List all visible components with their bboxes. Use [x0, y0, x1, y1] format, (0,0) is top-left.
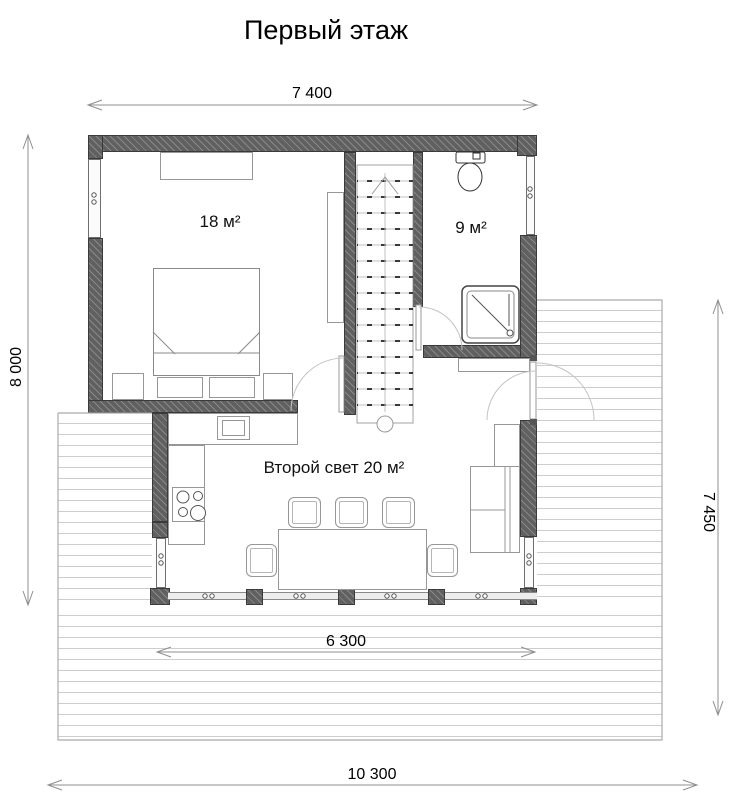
post-bottom-3 — [338, 589, 355, 605]
wall-left — [88, 238, 103, 413]
dimension-right-label: 7 450 — [699, 462, 717, 562]
sink-bowl — [222, 420, 245, 436]
shower-outline — [462, 286, 519, 343]
wall-left-lower — [152, 413, 168, 522]
bathroom-cabinet — [458, 358, 530, 372]
toilet — [456, 152, 485, 191]
shower-diagonal — [472, 295, 509, 332]
wall-right-corner — [517, 135, 537, 156]
deck-bottom — [58, 605, 662, 740]
pillow-left — [157, 377, 203, 398]
wall-bathroom-bottom — [423, 345, 531, 358]
shower-tray — [462, 286, 519, 343]
floor-plan: Первый этаж 18 м² 9 м² Второй свет 2 — [0, 0, 744, 810]
stair-newel — [377, 416, 393, 432]
sofa-side-section — [494, 424, 520, 467]
post-bottom-4 — [428, 589, 445, 605]
chair-top-1 — [288, 497, 321, 528]
bathroom-door-swing — [419, 307, 462, 350]
dining-table — [278, 529, 427, 590]
bedroom-door-swing — [291, 358, 344, 411]
bedroom-area-label: 18 м² — [170, 212, 270, 232]
bathroom-area-label: 9 м² — [421, 218, 521, 238]
post-left-mid — [152, 522, 168, 538]
chair-top-2 — [335, 497, 368, 528]
post-left-corner — [150, 588, 170, 605]
entry-door-swing-in — [487, 371, 536, 420]
deck-left — [58, 413, 152, 605]
window-left-lower — [156, 538, 166, 588]
window-right-upper — [526, 156, 535, 235]
wardrobe — [160, 152, 253, 180]
page-title: Первый этаж — [126, 15, 526, 46]
nightstand-right — [263, 373, 293, 400]
stair-tread-marks — [357, 181, 413, 405]
window-left — [88, 159, 101, 238]
wall-right-mid — [520, 235, 537, 358]
stair-direction-arrow — [372, 177, 398, 194]
dimension-top-label: 7 400 — [262, 85, 362, 103]
wall-bedroom-bottom — [88, 400, 298, 413]
window-right-lower — [524, 537, 534, 588]
deck-right — [537, 300, 662, 605]
dimension-terrace-label: 6 300 — [296, 633, 396, 651]
shower-inner — [467, 291, 514, 338]
entry-door-leaf — [530, 362, 536, 419]
wall-top — [88, 135, 537, 152]
toilet-tank — [456, 152, 485, 163]
post-bottom-2 — [246, 589, 263, 605]
chair-right — [427, 544, 458, 577]
cabinet-bedroom — [327, 192, 344, 323]
double-bed — [153, 268, 260, 376]
living-room-label: Второй свет 20 м² — [234, 458, 434, 478]
chair-left — [246, 544, 277, 577]
sofa — [470, 466, 520, 553]
stair-outline — [357, 165, 413, 423]
wall-left-corner — [88, 135, 103, 159]
pillow-right — [209, 377, 255, 398]
stove — [172, 487, 205, 522]
bathroom-door-leaf — [416, 305, 421, 350]
toilet-flush-button — [473, 153, 480, 159]
chair-top-3 — [382, 497, 415, 528]
stair-treads — [357, 181, 413, 405]
wall-staircase — [344, 152, 356, 415]
dimension-left-label: 8 000 — [8, 317, 26, 417]
wall-right-lower — [520, 420, 537, 537]
nightstand-left — [112, 373, 144, 400]
staircase — [357, 165, 413, 432]
dimension-bottom-label: 10 300 — [322, 766, 422, 784]
shower-drain — [507, 330, 513, 336]
toilet-bowl — [458, 163, 482, 191]
